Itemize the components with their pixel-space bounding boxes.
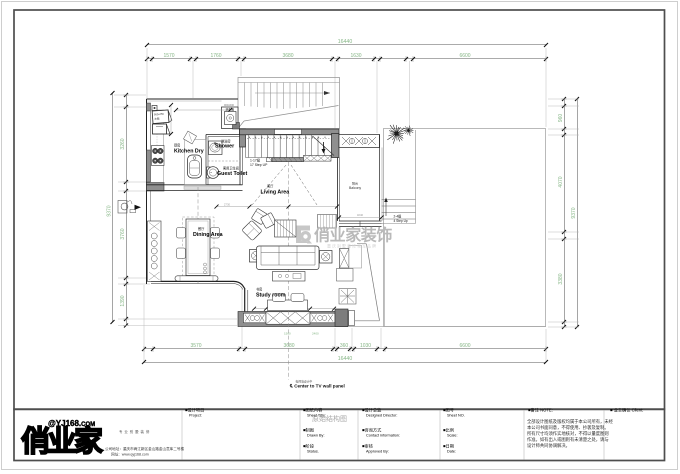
svg-text:Date:: Date: [447, 450, 456, 454]
svg-text:■阶段: ■阶段 [303, 443, 315, 450]
svg-text:900x450: 900x450 [154, 112, 165, 117]
svg-text:Scale:: Scale: [447, 434, 458, 438]
svg-text:原始结构图: 原始结构图 [312, 414, 347, 423]
svg-text:1030: 1030 [360, 343, 371, 349]
svg-text:1-17级: 1-17级 [250, 158, 261, 163]
svg-text:客用卫生间: 客用卫生间 [223, 166, 239, 171]
svg-text:专业别墅装修: 专业别墅装修 [119, 429, 151, 434]
svg-text:全部设计图纸及版权均属于本公司所有，未经: 全部设计图纸及版权均属于本公司所有，未经 [527, 418, 614, 425]
svg-text:公司地址：重庆市两江新区金山路金山意库二号楼: 公司地址：重庆市两江新区金山路金山意库二号楼 [105, 446, 184, 451]
svg-text:所有尺寸均须作实地核对，不得以量度图则: 所有尺寸均须作实地核对，不得以量度图则 [527, 430, 609, 437]
svg-text:■咨询方式: ■咨询方式 [362, 427, 382, 434]
svg-text:6600: 6600 [459, 53, 470, 59]
svg-text:厨房: 厨房 [174, 143, 180, 148]
svg-text:■制图: ■制图 [303, 427, 314, 434]
svg-text:阳台: 阳台 [352, 181, 358, 186]
svg-text:3570: 3570 [190, 343, 201, 349]
svg-text:Living Area: Living Area [261, 190, 290, 196]
svg-text:■ 业主确认 Client:: ■ 业主确认 Client: [610, 407, 643, 414]
svg-text:设计师共同协调解决。: 设计师共同协调解决。 [527, 442, 570, 449]
svg-text:900x600: 900x600 [224, 103, 235, 107]
svg-text:Shower: Shower [215, 144, 234, 150]
svg-text:网址：www.qyj168.com: 网址：www.qyj168.com [111, 452, 149, 457]
svg-text:■备注 NOTE:: ■备注 NOTE: [528, 407, 553, 414]
svg-text:3260: 3260 [120, 138, 126, 149]
svg-text:2-4级: 2-4级 [394, 214, 403, 219]
svg-text:洗衣機: 洗衣機 [226, 108, 235, 112]
svg-text:1500: 1500 [284, 332, 291, 336]
svg-text:书房: 书房 [256, 287, 262, 292]
svg-text:3680: 3680 [283, 343, 294, 349]
svg-text:3760: 3760 [120, 228, 126, 239]
svg-text:6600: 6600 [459, 343, 470, 349]
svg-text:2730: 2730 [224, 203, 231, 207]
svg-text:本公司书面同意，不得使用、抄袭及复制。: 本公司书面同意，不得使用、抄袭及复制。 [527, 424, 609, 431]
svg-text:℄ Center to TV wall panel: ℄ Center to TV wall panel [289, 383, 345, 389]
svg-text:17 Step UP: 17 Step UP [250, 163, 268, 167]
svg-text:960: 960 [558, 114, 564, 123]
svg-text:1570: 1570 [163, 53, 174, 59]
svg-text:■审核: ■审核 [362, 443, 374, 450]
svg-text:Study room: Study room [256, 293, 286, 299]
svg-text:1760: 1760 [210, 53, 221, 59]
svg-text:4 Step Up: 4 Step Up [394, 219, 408, 223]
svg-text:俏业家: 俏业家 [21, 424, 103, 458]
svg-text:Approved By:: Approved By: [366, 450, 389, 454]
svg-text:Status.: Status. [307, 450, 319, 454]
svg-text:Dining Area: Dining Area [193, 232, 223, 238]
svg-text:■设计项目: ■设计项目 [185, 407, 204, 414]
svg-text:1390: 1390 [120, 295, 126, 306]
svg-text:俏业家装饰: 俏业家装饰 [314, 226, 392, 245]
svg-text:16440: 16440 [338, 39, 353, 45]
svg-text:2400: 2400 [312, 332, 319, 336]
svg-text:冰箱: 冰箱 [154, 117, 160, 121]
svg-text:客厅: 客厅 [267, 184, 274, 189]
svg-text:3240: 3240 [357, 213, 364, 217]
svg-text:Contact information:: Contact information: [366, 434, 400, 438]
svg-text:Balcony: Balcony [349, 186, 361, 190]
svg-text:16440: 16440 [338, 356, 353, 362]
svg-text:1630: 1630 [350, 53, 361, 59]
svg-text:餐厅: 餐厅 [198, 226, 205, 231]
svg-text:Designed Director:: Designed Director: [366, 414, 397, 418]
svg-text:3680: 3680 [282, 53, 293, 59]
svg-text:Sheet NO.: Sheet NO. [447, 414, 465, 418]
svg-text:■图纸内容: ■图纸内容 [303, 407, 322, 414]
svg-text:Kitchen Dry: Kitchen Dry [174, 149, 204, 155]
svg-text:360: 360 [340, 343, 349, 349]
svg-text:Project:: Project: [189, 414, 202, 418]
svg-text:Guest Toilet: Guest Toilet [217, 171, 247, 177]
svg-text:■比例: ■比例 [443, 427, 454, 434]
svg-text:9370: 9370 [571, 207, 577, 218]
svg-text:作准。如有出入或图则有未清楚之处，请与: 作准。如有出入或图则有未清楚之处，请与 [527, 436, 609, 443]
svg-text:4070: 4070 [558, 176, 564, 187]
svg-text:Drawn By:: Drawn By: [307, 434, 325, 438]
svg-text:9370: 9370 [107, 205, 113, 216]
svg-text:3380: 3380 [558, 273, 564, 284]
svg-text:重庆别墅装修领军品牌: 重庆别墅装修领军品牌 [327, 243, 377, 249]
svg-text:■设计总监: ■设计总监 [362, 407, 381, 414]
